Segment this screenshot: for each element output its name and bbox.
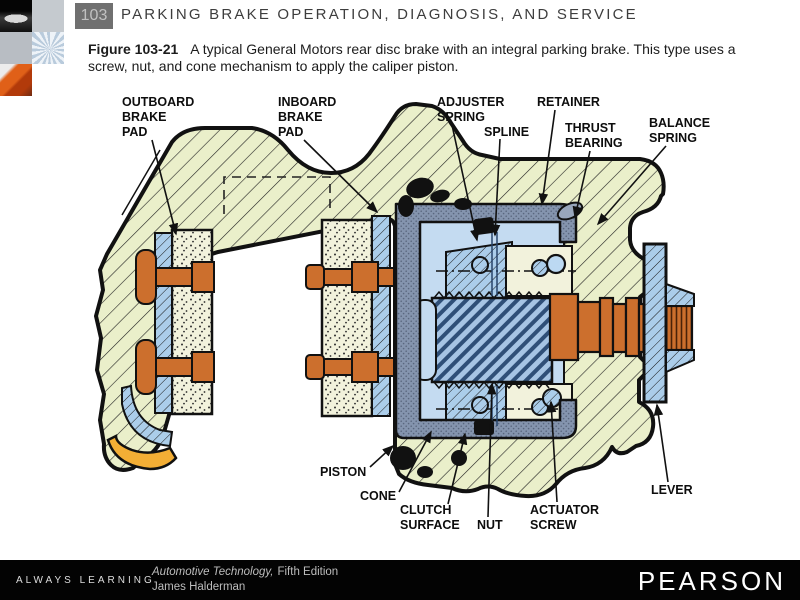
footer-bar: ALWAYS LEARNING Automotive Technology,Fi… — [0, 560, 800, 600]
label-retainer: RETAINER — [537, 95, 600, 109]
arm-inner-contour — [122, 150, 160, 215]
label-cone: CONE — [360, 489, 396, 503]
figure-label: Figure 103-21 — [88, 41, 178, 57]
thread-crests-bottom — [434, 382, 549, 388]
brake-caliper-diagram: OUTBOARDBRAKEPAD INBOARDBRAKEPAD ADJUSTE… — [0, 0, 800, 600]
actuator-screw-shaft — [550, 294, 664, 360]
thrust-bearing-ball — [547, 255, 565, 273]
thumbnail-wheel-pattern — [32, 32, 64, 64]
wear-indicator-clip — [108, 436, 176, 469]
outboard-backing-plate — [155, 233, 172, 413]
cone-lower-section — [446, 382, 512, 438]
adjuster-screw-threads — [432, 298, 552, 382]
label-spline: SPLINE — [484, 125, 529, 139]
label-balance-spring: BALANCESPRING — [649, 116, 710, 145]
book-edition: Fifth Edition — [277, 566, 338, 578]
book-credit: Automotive Technology,Fifth Edition Jame… — [152, 565, 338, 595]
thumbnail-white-tile — [32, 64, 64, 96]
label-outboard-brake-pad: OUTBOARDBRAKEPAD — [122, 95, 194, 139]
nut-lower-section — [506, 384, 572, 434]
piston-cup — [396, 204, 576, 438]
always-learning-tagline: ALWAYS LEARNING — [16, 575, 155, 586]
adjuster-spring-sections — [472, 257, 548, 415]
caliper-body — [96, 104, 664, 496]
label-inboard-brake-pad: INBOARDBRAKEPAD — [278, 95, 336, 139]
figure-caption-text: A typical General Motors rear disc brake… — [88, 41, 736, 74]
hidden-edge-dashes — [224, 177, 330, 214]
figure-caption: Figure 103-21A typical General Motors re… — [88, 41, 748, 75]
pearson-logo: PEARSON — [638, 566, 786, 597]
outboard-pad-pins — [136, 250, 214, 394]
inboard-pad-pins — [306, 262, 394, 382]
book-author: James Halderman — [152, 580, 338, 595]
thumbnail-gray-tile — [32, 0, 64, 32]
lever-plate — [644, 244, 666, 402]
cone-upper-section — [446, 242, 512, 298]
inboard-pad-friction — [322, 220, 372, 416]
seals-and-boots — [390, 175, 495, 478]
slide-title: PARKING BRAKE OPERATION, DIAGNOSIS, AND … — [121, 6, 638, 23]
label-lever: LEVER — [651, 483, 693, 497]
page-number-badge: 103 — [75, 3, 113, 29]
lever-nut-lower — [666, 350, 694, 372]
lever-nut-upper — [666, 284, 694, 306]
spline-serrations — [492, 232, 497, 426]
screw-end-cap — [414, 300, 436, 380]
nut-upper-section — [506, 246, 572, 296]
label-thrust-bearing: THRUSTBEARING — [565, 121, 623, 150]
piston-bore-interior — [414, 220, 564, 422]
label-actuator-screw: ACTUATORSCREW — [530, 503, 599, 532]
pad-retainer-hook — [122, 386, 172, 446]
inboard-backing-plate — [372, 216, 390, 416]
thrust-bearing-race — [555, 199, 584, 223]
book-title: Automotive Technology, — [152, 566, 273, 578]
thumbnail-classic-car — [0, 0, 32, 32]
thumbnail-orange-car — [0, 64, 32, 96]
balance-spring-section — [543, 389, 561, 407]
slide-page: 103 PARKING BRAKE OPERATION, DIAGNOSIS, … — [0, 0, 800, 600]
thread-crests-top — [434, 292, 544, 298]
leader-lines — [152, 110, 668, 517]
label-nut: NUT — [477, 518, 503, 532]
outboard-pad-friction — [172, 230, 212, 414]
actuator-screw-threaded-end — [664, 306, 692, 350]
thumbnail-gray-tile-2 — [0, 32, 32, 64]
label-clutch-surface: CLUTCHSURFACE — [400, 503, 460, 532]
label-adjuster-spring: ADJUSTERSPRING — [437, 95, 504, 124]
label-piston: PISTON — [320, 465, 366, 479]
